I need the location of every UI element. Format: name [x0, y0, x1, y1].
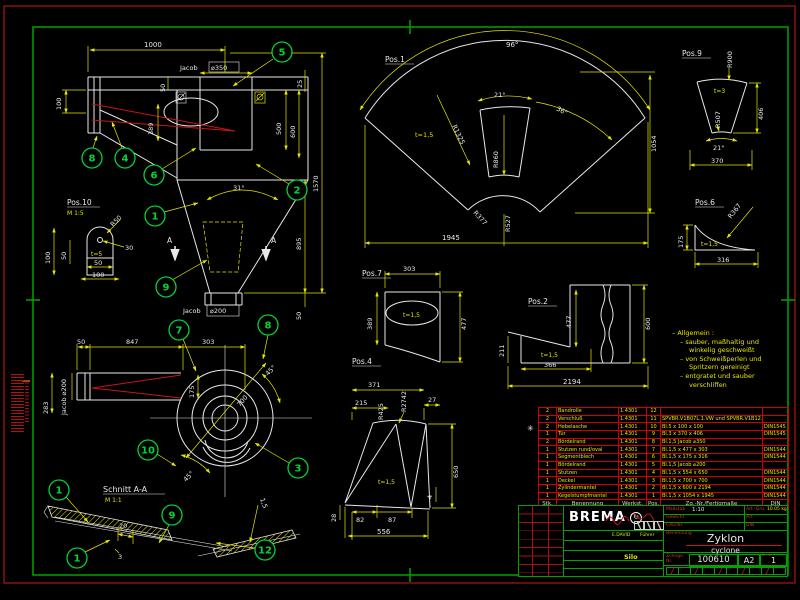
flange-top-dia: ⌀350	[211, 64, 227, 72]
parts-cell-name: Tür	[557, 431, 619, 439]
parts-cell-pos: 9	[647, 431, 661, 439]
dim-50: 50	[77, 338, 85, 346]
parts-cell-material: 1.4301	[619, 484, 647, 492]
parts-cell-name: Bandrolle	[557, 408, 619, 416]
svg-text:8: 8	[89, 154, 96, 165]
r425: R425	[377, 403, 385, 420]
index-box-row	[666, 567, 785, 575]
dim-100h: 100	[92, 271, 104, 279]
dim-895: 895	[295, 238, 303, 250]
sheet-number-label: Bl.-Nr.	[762, 553, 773, 558]
pos7-t: t=1,5	[403, 312, 420, 319]
parts-cell-din	[763, 415, 789, 423]
parts-cell-din	[763, 461, 789, 469]
balloon-3[interactable]: 3	[255, 443, 308, 478]
r527: R527	[504, 215, 512, 232]
dim-370: 370	[711, 157, 723, 165]
parts-cell-din	[763, 438, 789, 446]
title-block-middle: BREMA ↻ E.DAVID Führer Silo	[564, 506, 664, 576]
pos2-label: Pos.2	[528, 297, 548, 306]
balloon-4[interactable]: 4	[112, 122, 135, 168]
pos10-label: Pos.10	[67, 198, 92, 207]
parts-cell-pos: 6	[647, 454, 661, 462]
svg-text:7: 7	[176, 326, 183, 337]
note-line: – Allgemein :	[672, 329, 762, 338]
pos2-detail: Pos.2 477 600 211 t=1,5 366 2194	[498, 285, 652, 389]
pos4-detail: Pos.4 82 87 556 28 650 4 27 215 371 R425	[330, 357, 460, 540]
pos4-t: t=1,5	[378, 479, 395, 486]
pos1-development: Pos.1 96° 21° 36° t=1,5 R1325 R860 R377 …	[360, 31, 658, 248]
dim-303: 303	[403, 265, 415, 273]
parts-cell-qty: 2	[539, 408, 557, 416]
parts-cell-qty: 1	[539, 431, 557, 439]
dim-1000: 1000	[144, 41, 162, 49]
parts-row[interactable]: 2Verschluß1.430111SPVBR.V1B07L.1.VW und …	[539, 415, 789, 423]
parts-cell-name: Bördelrand	[557, 461, 619, 469]
dim-500: 500	[275, 123, 283, 135]
note-line: – von Schweißperlen und	[672, 355, 762, 364]
dim-50v: 50	[60, 252, 68, 260]
flange-top-brand: Jacob	[179, 64, 198, 72]
r507: R507	[714, 111, 722, 128]
parts-cell-material: 1.4301	[619, 423, 647, 431]
parts-cell-pos: 4	[647, 469, 661, 477]
dim-50-top: 50	[159, 84, 167, 92]
door-dashed-outline	[203, 222, 243, 272]
parts-cell-material: 1.4301	[619, 454, 647, 462]
parts-cell-material: 1.4301	[619, 492, 647, 500]
revision-mark: ✳	[527, 424, 534, 433]
parts-cell-material: 1.4301	[619, 469, 647, 477]
angle-21: 21°	[494, 91, 506, 99]
parts-row[interactable]: 1Zylindermantel1.43012Bl.1,5 x 600 x 219…	[539, 484, 789, 492]
pos10-scale: M 1:5	[67, 210, 84, 217]
angle-36: 36°	[555, 105, 569, 117]
parts-cell-din: DIN1545	[763, 431, 789, 439]
dim-389: 389	[366, 318, 374, 330]
dim-4: 4	[426, 495, 434, 499]
svg-text:3: 3	[295, 464, 302, 475]
art-label: Art.	[746, 515, 754, 520]
pos10-detail: Pos.10 M 1:5 100 50 R50 30 t=5 50 100	[44, 198, 133, 279]
balloon-9a[interactable]: 9	[156, 260, 207, 297]
dim-100: 100	[55, 98, 63, 110]
weight-value: 10.05 kg	[767, 507, 787, 512]
r367: R367	[726, 202, 743, 220]
parts-cell-din: DIN1544	[763, 446, 789, 454]
pos9-angle-21: 21°	[713, 144, 725, 152]
parts-cell-pos: 1	[647, 492, 661, 500]
parts-cell-name: Bördelrand	[557, 438, 619, 446]
parts-cell-material: 1.4301	[619, 438, 647, 446]
balloon-1c[interactable]: 1	[67, 540, 110, 568]
r377: R377	[472, 209, 489, 227]
pos4-label: Pos.4	[352, 357, 372, 366]
parts-cell-qty: 1	[539, 484, 557, 492]
note-line: winkelig geschweißt	[672, 346, 762, 355]
parts-row[interactable]: 2Hebelasche1.430110Bl.5 x 100 x 100DIN15…	[539, 423, 789, 431]
parts-cell-material: 1.4301	[619, 446, 647, 454]
svg-text:9: 9	[169, 511, 176, 522]
parts-cell-pos: 7	[647, 446, 661, 454]
parts-cell-size: SPVBR.V1B07L.1.VW und SPVBR.V1B12.1.VW	[661, 415, 763, 423]
parts-cell-size: Bl.1,5 x 477 x 303	[661, 446, 763, 454]
parts-row[interactable]: 2Bandrolle1.430112	[539, 408, 789, 416]
parts-cell-pos: 11	[647, 415, 661, 423]
angle-31: 31°	[233, 184, 245, 192]
svg-text:1: 1	[152, 212, 159, 223]
parts-cell-size: Bl.1,5 x 1054 x 1945	[661, 492, 763, 500]
pos6-dimensions: 175 R367 t=1,5 316	[677, 202, 758, 268]
parts-cell-din: DIN1544	[763, 469, 789, 477]
parts-cell-din: DIN1544	[763, 454, 789, 462]
pos9-label: Pos.9	[682, 49, 702, 58]
parts-cell-size: Bl.1,5 x 175 x 316	[661, 454, 763, 462]
scale-label: Maßstab	[666, 507, 685, 512]
cad-number-label: CAD-Nr.	[666, 523, 684, 528]
parts-cell-din: DIN1544	[763, 477, 789, 485]
parts-cell-name: Stutzen	[557, 469, 619, 477]
dim-477: 477	[565, 316, 573, 328]
svg-text:6: 6	[151, 171, 158, 182]
top-view: 50 847 303 175 283 Jacob ⌀200 700 45° 45…	[42, 338, 312, 497]
parts-cell-qty: 1	[539, 461, 557, 469]
weight-label: Gewicht	[666, 515, 684, 520]
parts-cell-qty: 2	[539, 423, 557, 431]
signature-scribble	[574, 507, 664, 531]
section-letter-left: A	[167, 236, 173, 245]
dim-25: 25	[296, 80, 304, 88]
balloon-6[interactable]: 6	[144, 148, 196, 185]
dim-87: 87	[388, 516, 396, 524]
parts-cell-din: DIN1544	[763, 484, 789, 492]
pos1-t: t=1,5	[415, 131, 433, 139]
dim-211: 211	[498, 345, 506, 357]
dim-847: 847	[126, 338, 138, 346]
parts-cell-material: 1.4301	[619, 431, 647, 439]
svg-text:4: 4	[122, 154, 129, 165]
parts-cell-name: Stutzen rund/oval	[557, 446, 619, 454]
dim-1-5: 1,5	[258, 497, 269, 509]
dim-283: 283	[42, 402, 50, 414]
parts-row[interactable]: 2Bördelrand1.43018Bl.1,5 Jacob ⌀350	[539, 438, 789, 446]
dim-175: 175	[188, 386, 196, 398]
angle-45-2: 45°	[182, 470, 196, 484]
r50: R50	[109, 214, 124, 229]
balloon-2[interactable]: 2	[256, 164, 307, 200]
flange-label: Jacob ⌀200	[60, 379, 68, 416]
drawing-title: Zyklon	[664, 532, 787, 545]
section-letter-right: A	[271, 236, 277, 245]
revision-strip	[519, 506, 564, 576]
dim-2194: 2194	[563, 378, 581, 386]
margin-stamp-text	[25, 380, 29, 422]
flange-bot-dia: ⌀200	[210, 307, 226, 315]
pos4-dimensions: 82 87 556 28 650 4 27 215 371 R425 R2742…	[330, 381, 460, 540]
pos6-t: t=1,5	[701, 241, 718, 248]
parts-cell-qty: 2	[539, 438, 557, 446]
scale-value: 1:10	[692, 507, 704, 513]
drawing-number[interactable]: 100610	[689, 554, 738, 567]
parts-cell-name: Zylindermantel	[557, 484, 619, 492]
dim-27: 27	[428, 396, 436, 404]
parts-cell-size: Bl.1,5 x 554 x 650	[661, 469, 763, 477]
pos2-t: t=1,5	[541, 352, 558, 359]
dim-82: 82	[356, 516, 364, 524]
pos7-dimensions: 303 389 477 t=1,5	[366, 265, 468, 362]
pos1-label: Pos.1	[385, 55, 405, 64]
dia-700: 700	[235, 394, 249, 409]
pos6-detail: Pos.6 175 R367 t=1,5 316	[677, 198, 758, 268]
parts-cell-name: Kegelstumpfmantel	[557, 492, 619, 500]
balloon-10[interactable]: 10	[138, 440, 176, 466]
parts-cell-size: Bl.1,5 x 600 x 2194	[661, 484, 763, 492]
parts-cell-qty: 1	[539, 446, 557, 454]
svg-text:10: 10	[141, 446, 155, 457]
din-label: DIN.	[746, 523, 756, 528]
pos10-dimensions: 100 50 R50 30 t=5 50 100	[44, 214, 133, 279]
art-group-label: Art.-Gru.	[746, 507, 766, 512]
parts-list-body: 2Bandrolle1.4301122Verschluß1.430111SPVB…	[539, 408, 789, 509]
svg-text:9: 9	[163, 283, 170, 294]
front-outline	[88, 77, 308, 305]
note-line: – entgratet und sauber	[672, 372, 762, 381]
svg-text:12: 12	[258, 546, 272, 557]
drawing-number-label: Zchngs-Nr.	[666, 554, 688, 564]
flange-bot-brand: Jacob	[182, 307, 201, 315]
parts-row[interactable]: 1Bördelrand1.43015Bl.1,5 Jacob ⌀200	[539, 461, 789, 469]
flange-ellipse	[164, 98, 218, 126]
dim-600: 600	[289, 126, 297, 138]
r900: R900	[726, 51, 734, 68]
parts-cell-pos: 2	[647, 484, 661, 492]
duct-red-edges	[92, 104, 235, 131]
dim-1570: 1570	[312, 175, 320, 192]
parts-cell-size	[661, 408, 763, 416]
dim-100v: 100	[44, 252, 52, 264]
balloon-1a[interactable]: 1	[145, 203, 198, 226]
dim-28: 28	[330, 514, 338, 522]
pos7-detail: Pos.7 303 389 477 t=1,5	[362, 265, 468, 362]
signature-date: E.DAVID	[612, 533, 630, 538]
svg-text:2: 2	[294, 186, 301, 197]
parts-cell-din: DIN1544	[763, 492, 789, 500]
parts-row[interactable]: 1Segmentblech1.43016Bl.1,5 x 175 x 316DI…	[539, 454, 789, 462]
angle-96: 96°	[506, 41, 518, 49]
parts-cell-name: Verschluß	[557, 415, 619, 423]
parts-row[interactable]: 1Tür1.43019Bl.3 x 370 x 406DIN1545	[539, 431, 789, 439]
note-line: Spritzern gereinigt	[672, 363, 762, 372]
dim-30: 30	[125, 244, 133, 252]
dim-366: 366	[544, 361, 556, 369]
dim-556: 556	[377, 528, 391, 536]
parts-row[interactable]: 1Stutzen rund/oval1.43017Bl.1,5 x 477 x …	[539, 446, 789, 454]
parts-cell-qty: 1	[539, 477, 557, 485]
angle-45-1: 45°	[264, 364, 278, 378]
parts-cell-size: Bl.5 x 100 x 100	[661, 423, 763, 431]
balloon-8a[interactable]: 8	[82, 136, 102, 168]
balloon-8b[interactable]: 8	[258, 315, 278, 359]
dim-600: 600	[644, 318, 652, 330]
balloon-5[interactable]: 5	[233, 42, 292, 86]
svg-text:8: 8	[265, 321, 272, 332]
parts-cell-qty: 1	[539, 469, 557, 477]
dim-406: 406	[757, 108, 765, 120]
pos9-detail: Pos.9 R900 t=3 R507 406 21° 370	[682, 49, 765, 170]
pos9-t: t=3	[714, 88, 725, 95]
section-title: Schnitt A-A	[103, 485, 148, 494]
dim-650: 650	[452, 466, 460, 478]
signature-name: Führer	[640, 533, 654, 538]
parts-cell-pos: 8	[647, 438, 661, 446]
parts-cell-name: Hebelasche	[557, 423, 619, 431]
parts-cell-qty: 1	[539, 492, 557, 500]
cad-canvas[interactable]: 1000 Jacob ⌀350 50 25 100 389 500 600 15…	[0, 0, 800, 600]
parts-cell-din: DIN1545	[763, 423, 789, 431]
parts-cell-qty: 1	[539, 454, 557, 462]
pos6-label: Pos.6	[695, 198, 715, 207]
parts-cell-pos: 3	[647, 477, 661, 485]
dim-389: 389	[147, 123, 155, 135]
r2742: R2742	[400, 391, 408, 412]
svg-text:1: 1	[56, 486, 63, 497]
parts-cell-material: 1.4301	[619, 408, 647, 416]
note-line: verschliffen	[672, 381, 762, 390]
dim-3: 3	[118, 553, 122, 561]
parts-cell-pos: 5	[647, 461, 661, 469]
parts-cell-material: 1.4301	[619, 461, 647, 469]
dim-303: 303	[202, 338, 214, 346]
pos10-t: t=5	[91, 251, 102, 258]
parts-cell-material: 1.4301	[619, 477, 647, 485]
note-line: – sauber, maßhaltig und	[672, 338, 762, 347]
dim-20: 20	[119, 522, 127, 530]
svg-text:5: 5	[279, 48, 286, 59]
parts-list: 2Bandrolle1.4301122Verschluß1.430111SPVB…	[538, 407, 788, 504]
parts-row[interactable]: 1Stutzen1.43014Bl.1,5 x 554 x 650DIN1544	[539, 469, 789, 477]
title-block-fields: Maßstab 1:10 Art.-Gru. 10.05 kg Gewicht …	[664, 506, 787, 576]
parts-cell-name: Deckel	[557, 477, 619, 485]
r1325: R1325	[450, 123, 466, 145]
parts-cell-din	[763, 408, 789, 416]
r860: R860	[492, 151, 500, 168]
margin-stamp-text	[11, 372, 24, 432]
parts-row[interactable]: 1Deckel1.43013Bl.1,5 x 700 x 700DIN1544	[539, 477, 789, 485]
pos7-label: Pos.7	[362, 269, 382, 278]
parts-cell-size: Bl.1,5 x 700 x 700	[661, 477, 763, 485]
dim-215: 215	[355, 399, 367, 407]
project-name[interactable]: Silo	[624, 553, 638, 561]
parts-cell-pos: 10	[647, 423, 661, 431]
dim-371: 371	[368, 381, 380, 389]
title-block: BREMA ↻ E.DAVID Führer Silo Maßstab 1:10…	[518, 505, 788, 577]
dim-477: 477	[460, 318, 468, 330]
svg-text:1: 1	[74, 554, 81, 565]
general-notes: – Allgemein : – sauber, maßhaltig und wi…	[672, 329, 762, 389]
parts-cell-material: 1.4301	[619, 415, 647, 423]
parts-row[interactable]: 1Kegelstumpfmantel1.43011Bl.1,5 x 1054 x…	[539, 492, 789, 500]
balloon-7[interactable]: 7	[169, 320, 196, 371]
parts-cell-size: Bl.1,5 Jacob ⌀200	[661, 461, 763, 469]
parts-cell-size: Bl.3 x 370 x 406	[661, 431, 763, 439]
pos1-dimensions: 96° 21° 36° t=1,5 R1325 R860 R377 R527 1…	[360, 31, 658, 248]
dim-50-bot: 50	[295, 312, 303, 320]
sheet-format: A2	[738, 554, 760, 567]
dim-316: 316	[717, 256, 729, 264]
dim-1945: 1945	[442, 234, 460, 242]
dim-175: 175	[677, 236, 685, 248]
parts-cell-pos: 12	[647, 408, 661, 416]
parts-cell-name: Segmentblech	[557, 454, 619, 462]
dim-50h: 50	[94, 259, 102, 267]
parts-list-table: 2Bandrolle1.4301122Verschluß1.430111SPVB…	[538, 407, 789, 509]
parts-cell-size: Bl.1,5 Jacob ⌀350	[661, 438, 763, 446]
dim-1054: 1054	[650, 135, 658, 152]
pos9-dimensions: R900 t=3 R507 406 21° 370	[690, 51, 765, 170]
section-scale: M 1:1	[105, 497, 122, 504]
parts-cell-qty: 2	[539, 415, 557, 423]
